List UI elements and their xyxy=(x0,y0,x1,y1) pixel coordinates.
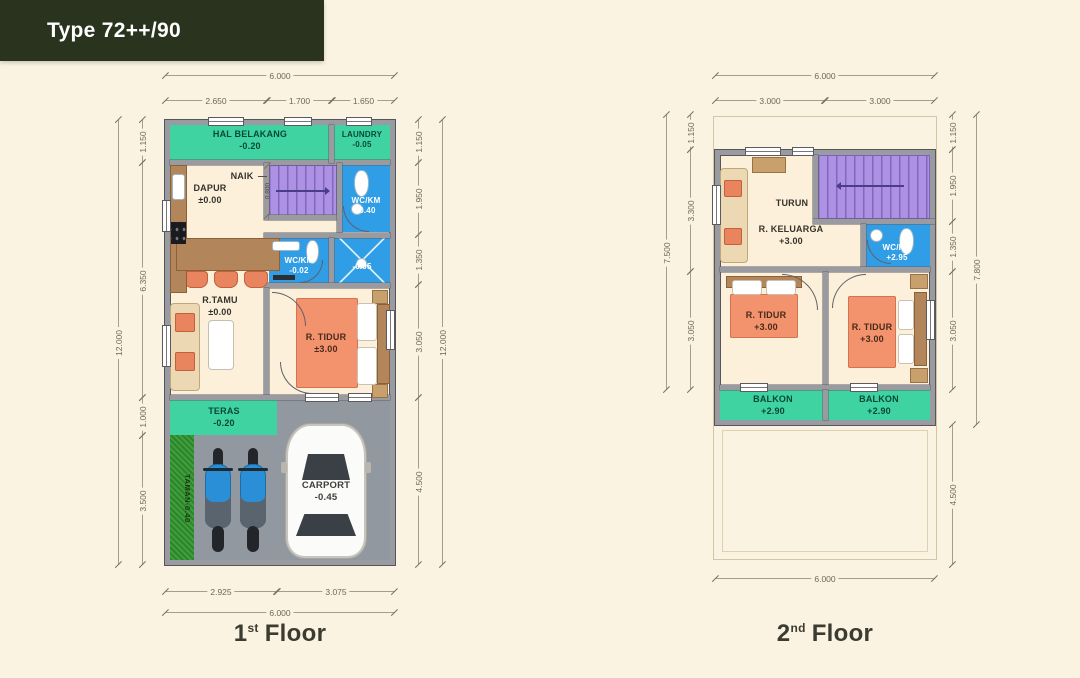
dim-f1-right-seg4: 3.050 xyxy=(418,285,419,398)
window-marker xyxy=(386,310,395,350)
dim-label: 1.650 xyxy=(350,96,377,106)
dim-label: 3.050 xyxy=(948,317,958,344)
dim-label: 4.500 xyxy=(948,481,958,508)
dim-f1-top-seg1: 2.650 xyxy=(165,100,267,101)
dim-f1-right-seg5: 4.500 xyxy=(418,398,419,565)
nightstand-icon xyxy=(372,384,388,398)
dim-label: 1.150 xyxy=(414,128,424,155)
dim-f1-left-seg2: 6.350 xyxy=(142,163,143,398)
dim-f1-right-seg3: 1.350 xyxy=(418,235,419,285)
window-marker xyxy=(162,325,171,367)
kitchen-island xyxy=(176,238,280,271)
dim-f1-left-seg4: 3.500 xyxy=(142,436,143,565)
wall xyxy=(269,215,342,220)
dim-f1-left-seg3: 1.000 xyxy=(142,398,143,436)
dim-f1-right-seg1: 1.150 xyxy=(418,120,419,163)
dim-label: 6.350 xyxy=(138,267,148,294)
dim-f1-top-seg2: 1.700 xyxy=(267,100,332,101)
dim-label: 3.050 xyxy=(686,317,696,344)
dim-label: 6.000 xyxy=(266,608,293,618)
dim-label: 12.000 xyxy=(438,327,448,359)
dim-f1-bottom-seg1: 2.925 xyxy=(165,591,277,592)
dim-label: 1.950 xyxy=(948,172,958,199)
plan-type-badge: Type 72++/90 xyxy=(0,0,324,61)
dim-label: 7.500 xyxy=(662,239,672,266)
label-r-tamu: R.TAMU±0.00 xyxy=(182,295,258,318)
label-teras: TERAS-0.20 xyxy=(176,406,272,429)
label-carport: CARPORT-0.45 xyxy=(286,480,366,505)
dim-f2-top-seg1: 3.000 xyxy=(715,100,825,101)
dim-label: 2.650 xyxy=(202,96,229,106)
dim-label: 3.000 xyxy=(866,96,893,106)
dim-label: 6.000 xyxy=(811,574,838,584)
pillow-icon xyxy=(732,280,762,295)
dim-label: 1.350 xyxy=(414,246,424,273)
dim-label: 6.000 xyxy=(811,71,838,81)
dim-f1-left-seg1: 1.150 xyxy=(142,120,143,163)
dim-label: 3.500 xyxy=(138,487,148,514)
sofa-cushion xyxy=(175,352,195,371)
sofa-cushion xyxy=(724,228,742,245)
label-r-tidur-right: R. TIDUR+3.00 xyxy=(834,322,910,345)
sink-icon xyxy=(272,241,300,251)
dim-f2-left-total: 7.500 xyxy=(666,115,667,390)
dim-label: 3.300 xyxy=(686,197,696,224)
dim-label: 0.800 xyxy=(264,182,271,200)
window-marker xyxy=(926,300,935,340)
dim-f1-stair-width: 0.800 xyxy=(267,166,268,216)
dim-label: 1.150 xyxy=(948,119,958,146)
coffee-table-icon xyxy=(208,320,234,370)
stove-icon xyxy=(171,222,186,244)
dim-f2-left-seg1: 1.150 xyxy=(690,115,691,150)
label-r-keluarga: R. KELUARGA+3.00 xyxy=(745,224,837,247)
dim-label: 1.700 xyxy=(286,96,313,106)
window-marker xyxy=(712,185,721,225)
dim-f1-bottom-seg2: 3.075 xyxy=(277,591,395,592)
label-balkon-right: BALKON+2.90 xyxy=(832,394,926,417)
dim-f1-top-total: 6.000 xyxy=(165,75,395,76)
dim-f1-right-total: 12.000 xyxy=(442,120,443,565)
window-marker xyxy=(162,200,171,232)
label-taman: TAMAN-0.40 xyxy=(172,455,192,541)
window-marker xyxy=(208,117,244,126)
dim-label: 1.000 xyxy=(138,403,148,430)
dim-f2-left-seg2: 3.300 xyxy=(690,150,691,272)
chair-icon xyxy=(184,271,208,288)
toilet-icon xyxy=(354,170,369,197)
wall xyxy=(823,272,828,385)
label-balkon-left: BALKON+2.90 xyxy=(726,394,820,417)
stair-direction-arrow xyxy=(838,185,904,187)
dim-label: 1.150 xyxy=(138,128,148,155)
window-marker xyxy=(740,383,768,392)
window-marker xyxy=(305,393,339,402)
window-marker xyxy=(792,147,814,156)
dim-label: 1.150 xyxy=(686,119,696,146)
motorcycle-icon xyxy=(205,448,231,552)
chair-icon xyxy=(214,271,238,288)
label-shower-level: -0.05 xyxy=(336,262,388,272)
window-marker xyxy=(745,147,781,156)
dim-label: 3.075 xyxy=(322,587,349,597)
chair-icon xyxy=(244,271,268,288)
dim-label: 1.350 xyxy=(948,233,958,260)
plan-type-title: Type 72++/90 xyxy=(47,19,181,42)
dim-f2-left-seg3: 3.050 xyxy=(690,272,691,390)
dim-label: 12.000 xyxy=(114,327,124,359)
dim-f2-right-seg4: 3.050 xyxy=(952,272,953,390)
nightstand-icon xyxy=(372,290,388,304)
label-r-tidur: R. TIDUR±3.00 xyxy=(288,332,364,355)
dim-f2-right-seg5: 4.500 xyxy=(952,425,953,565)
wall xyxy=(329,238,334,283)
wall xyxy=(861,224,866,267)
floor2-caption: 2ndFloor xyxy=(715,620,935,648)
window-marker xyxy=(348,393,372,402)
label-laundry: LAUNDRY-0.05 xyxy=(332,130,392,151)
label-r-tidur-left: R. TIDUR+3.00 xyxy=(728,310,804,333)
dim-label: 7.800 xyxy=(972,256,982,283)
nightstand-icon xyxy=(910,274,928,289)
floor-plan-sheet: Type 72++/90 0.800 xyxy=(0,0,1080,678)
label-turun: TURUN xyxy=(768,198,816,210)
nightstand-icon xyxy=(910,368,928,383)
stair-direction-arrow xyxy=(276,190,328,192)
label-hal-belakang: HAL BELAKANG-0.20 xyxy=(180,129,320,152)
motorcycle-icon xyxy=(240,448,266,552)
dim-f1-left-total: 12.000 xyxy=(118,120,119,565)
side-table-icon xyxy=(752,157,786,173)
wall xyxy=(170,160,390,165)
floor2-roof-inner-line xyxy=(722,430,928,552)
floor1-caption: 1stFloor xyxy=(165,620,395,648)
dim-label: 4.500 xyxy=(414,468,424,495)
dim-f2-top-total: 6.000 xyxy=(715,75,935,76)
wall xyxy=(264,233,390,238)
dim-f2-top-seg2: 3.000 xyxy=(825,100,935,101)
dim-f1-bottom-total: 6.000 xyxy=(165,612,395,613)
dim-f2-bottom-total: 6.000 xyxy=(715,578,935,579)
sofa-cushion xyxy=(724,180,742,197)
dim-label: 3.050 xyxy=(414,328,424,355)
dim-f2-right-seg2: 1.950 xyxy=(952,150,953,222)
dim-f2-right-seg1: 1.150 xyxy=(952,115,953,150)
wall xyxy=(264,283,390,288)
wall xyxy=(264,288,269,395)
window-marker xyxy=(850,383,878,392)
dim-label: 2.925 xyxy=(207,587,234,597)
dim-f1-right-seg2: 1.950 xyxy=(418,163,419,235)
dim-label: 3.000 xyxy=(756,96,783,106)
dim-label: 6.000 xyxy=(266,71,293,81)
window-marker xyxy=(284,117,312,126)
label-wc-km-middle: WC/KM-0.02 xyxy=(270,256,328,277)
label-dapur: DAPUR±0.00 xyxy=(180,183,240,206)
dim-f2-right-total: 7.800 xyxy=(976,115,977,425)
window-marker xyxy=(346,117,372,126)
wall xyxy=(823,390,828,420)
label-naik: NAIK xyxy=(222,171,262,183)
dim-f1-top-seg3: 1.650 xyxy=(332,100,395,101)
label-wc-km-upper: WC/KM-0.40 xyxy=(340,196,392,217)
dim-f2-right-seg3: 1.350 xyxy=(952,222,953,272)
dim-label: 1.950 xyxy=(414,185,424,212)
label-wc-km-f2: WC/KM+2.95 xyxy=(868,243,926,264)
